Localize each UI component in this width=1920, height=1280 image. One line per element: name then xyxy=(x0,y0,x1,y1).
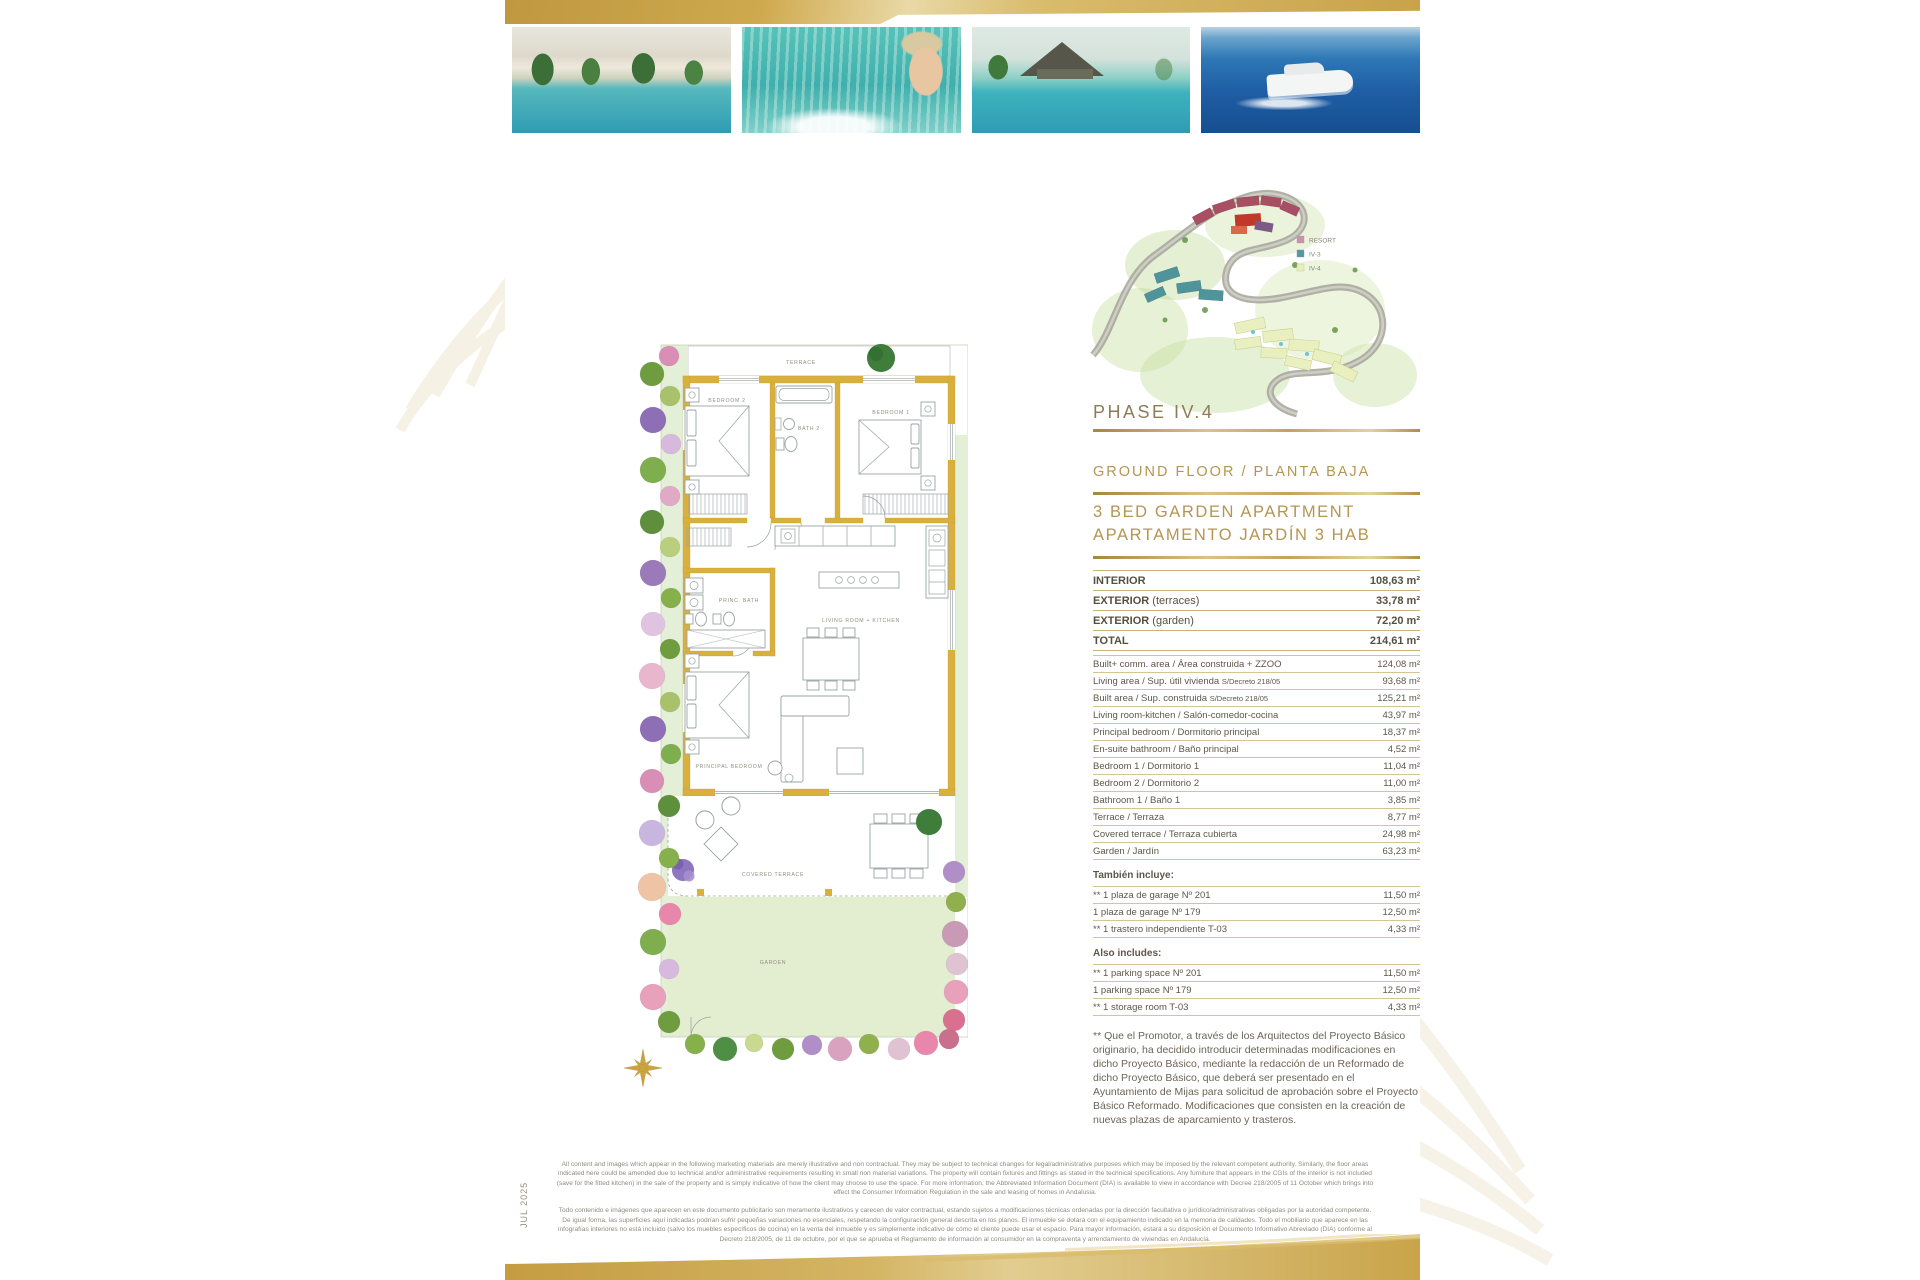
table-row: Living room-kitchen / Salón-comedor-coci… xyxy=(1093,707,1420,724)
table-row: TOTAL 214,61 m² xyxy=(1093,631,1420,651)
row-label: Built+ comm. area / Área construida + ZZ… xyxy=(1093,659,1282,670)
phase-title: PHASE IV.4 xyxy=(1093,402,1420,423)
table-row: ** 1 trastero independiente T-034,33 m² xyxy=(1093,921,1420,938)
floor-heading: GROUND FLOOR / PLANTA BAJA xyxy=(1093,464,1420,480)
masterplan-map: RESORT IV-3 IV-4 xyxy=(1085,170,1422,430)
row-value: 72,20 m² xyxy=(1376,615,1420,627)
row-value: 4,33 m² xyxy=(1388,1002,1420,1013)
top-gold-band xyxy=(505,0,1420,24)
bottom-gold-band xyxy=(505,1234,1420,1280)
table-row: 1 plaza de garage Nº 17912,50 m² xyxy=(1093,904,1420,921)
row-value: 108,63 m² xyxy=(1370,575,1420,587)
photo-yacht xyxy=(1201,27,1420,133)
row-label: 1 parking space Nº 179 xyxy=(1093,985,1192,996)
row-label: Principal bedroom / Dormitorio principal xyxy=(1093,727,1259,738)
photo-resort-pool xyxy=(512,27,731,133)
table-row: ** 1 storage room T-034,33 m² xyxy=(1093,999,1420,1016)
row-label: EXTERIOR xyxy=(1093,595,1149,607)
table-row: Garden / Jardín63,23 m² xyxy=(1093,843,1420,860)
table-row: Bedroom 1 / Dormitorio 111,04 m² xyxy=(1093,758,1420,775)
row-label: INTERIOR xyxy=(1093,575,1146,587)
table-row: ** 1 parking space Nº 20111,50 m² xyxy=(1093,965,1420,982)
garden-lawn xyxy=(668,897,955,1037)
legend-label-resort: RESORT xyxy=(1309,238,1336,245)
legend-swatch-iv4 xyxy=(1297,264,1304,271)
row-label: Bedroom 1 / Dormitorio 1 xyxy=(1093,761,1199,772)
row-value: 63,23 m² xyxy=(1383,846,1421,857)
promoter-footnote: ** Que el Promotor, a través de los Arqu… xyxy=(1093,1030,1420,1128)
row-value: 125,21 m² xyxy=(1377,693,1420,704)
table-row: Living area / Sup. útil vivienda S/Decre… xyxy=(1093,673,1420,690)
gold-rule xyxy=(1093,429,1420,432)
brochure-page: TERRACE xyxy=(505,0,1420,1280)
gold-rule xyxy=(1093,492,1420,495)
row-value: 11,00 m² xyxy=(1383,778,1420,789)
tambien-table: ** 1 plaza de garage Nº 20111,50 m² 1 pl… xyxy=(1093,886,1420,938)
row-value: 11,50 m² xyxy=(1383,968,1420,979)
table-row: Built+ comm. area / Área construida + ZZ… xyxy=(1093,656,1420,673)
bedroom2-label: BEDROOM 2 xyxy=(708,398,745,404)
row-value: 8,77 m² xyxy=(1388,812,1420,823)
row-note: (terraces) xyxy=(1152,595,1199,607)
row-value: 93,68 m² xyxy=(1383,676,1421,687)
gold-rule xyxy=(1093,556,1420,559)
yacht-shape xyxy=(1266,69,1353,97)
principal-bath-label: PRINC. BATH xyxy=(719,598,759,604)
garden-label: GARDEN xyxy=(760,960,786,966)
disclaimer-en: All content and images which appear in t… xyxy=(555,1160,1375,1197)
terrace-column xyxy=(697,889,704,896)
row-label: ** 1 parking space Nº 201 xyxy=(1093,968,1202,979)
legend-swatch-iv3 xyxy=(1297,250,1304,257)
table-row: EXTERIOR (garden)72,20 m² xyxy=(1093,611,1420,631)
row-value: 12,50 m² xyxy=(1383,985,1421,996)
row-label: En-suite bathroom / Baño principal xyxy=(1093,744,1239,755)
table-row: Bedroom 2 / Dormitorio 211,00 m² xyxy=(1093,775,1420,792)
covered-terrace-label: COVERED TERRACE xyxy=(742,872,804,878)
top-terrace xyxy=(688,346,950,376)
bath2-label: BATH 2 xyxy=(798,426,820,432)
row-label: ** 1 storage room T-03 xyxy=(1093,1002,1188,1013)
principal-bedroom-label: PRINCIPAL BEDROOM xyxy=(696,764,763,770)
brochure-canvas: TERRACE xyxy=(0,0,1920,1280)
compass-rose xyxy=(624,1049,662,1087)
area-summary-table: INTERIOR 108,63 m² EXTERIOR (terraces)33… xyxy=(1093,570,1420,651)
legend-label-iv4: IV-4 xyxy=(1309,266,1321,273)
row-small: S/Decreto 218/05 xyxy=(1222,677,1280,686)
row-label: Terrace / Terraza xyxy=(1093,812,1164,823)
row-label: TOTAL xyxy=(1093,635,1129,647)
table-row: En-suite bathroom / Baño principal4,52 m… xyxy=(1093,741,1420,758)
table-row: ** 1 plaza de garage Nº 20111,50 m² xyxy=(1093,887,1420,904)
table-row: Bathroom 1 / Baño 13,85 m² xyxy=(1093,792,1420,809)
row-value: 11,04 m² xyxy=(1383,761,1420,772)
photo-strip xyxy=(512,27,1420,133)
living-label: LIVING ROOM + KITCHEN xyxy=(822,618,900,624)
table-row: Terrace / Terraza8,77 m² xyxy=(1093,809,1420,826)
row-label: 1 plaza de garage Nº 179 xyxy=(1093,907,1201,918)
row-value: 33,78 m² xyxy=(1376,595,1420,607)
row-value: 18,37 m² xyxy=(1383,727,1421,738)
terrace-label: TERRACE xyxy=(786,360,816,366)
row-value: 12,50 m² xyxy=(1383,907,1421,918)
tambien-heading: También incluye: xyxy=(1093,870,1174,881)
dining-table xyxy=(803,628,859,690)
row-value: 4,33 m² xyxy=(1388,924,1420,935)
row-label: Bathroom 1 / Baño 1 xyxy=(1093,795,1180,806)
photo-lagoon-palapa xyxy=(972,27,1191,133)
row-value: 214,61 m² xyxy=(1370,635,1420,647)
tree xyxy=(869,347,883,361)
apartment-title-es: APARTAMENTO JARDÍN 3 HAB xyxy=(1093,526,1420,545)
row-value: 11,50 m² xyxy=(1383,890,1420,901)
terrace-column xyxy=(825,889,832,896)
row-label: ** 1 trastero independiente T-03 xyxy=(1093,924,1227,935)
legend-swatch-resort xyxy=(1297,236,1304,243)
date-code: JUL 2025 xyxy=(519,1148,529,1228)
area-detail-table: Built+ comm. area / Área construida + ZZ… xyxy=(1093,655,1420,860)
row-value: 124,08 m² xyxy=(1377,659,1420,670)
row-small: S/Decreto 218/05 xyxy=(1210,694,1268,703)
row-note: (garden) xyxy=(1152,615,1194,627)
also-table: ** 1 parking space Nº 20111,50 m² 1 park… xyxy=(1093,964,1420,1016)
palapa-base-shape xyxy=(1037,69,1093,79)
table-row: Principal bedroom / Dormitorio principal… xyxy=(1093,724,1420,741)
table-row: 1 parking space Nº 17912,50 m² xyxy=(1093,982,1420,999)
row-label: EXTERIOR xyxy=(1093,615,1149,627)
row-label: Built area / Sup. construida xyxy=(1093,693,1207,704)
row-label: Covered terrace / Terraza cubierta xyxy=(1093,829,1237,840)
row-label: ** 1 plaza de garage Nº 201 xyxy=(1093,890,1211,901)
apartment-title-en: 3 BED GARDEN APARTMENT xyxy=(1093,503,1420,522)
table-row: INTERIOR 108,63 m² xyxy=(1093,571,1420,591)
row-value: 3,85 m² xyxy=(1388,795,1420,806)
row-value: 24,98 m² xyxy=(1383,829,1421,840)
row-label: Garden / Jardín xyxy=(1093,846,1159,857)
row-label: Bedroom 2 / Dormitorio 2 xyxy=(1093,778,1199,789)
bedroom1-label: BEDROOM 1 xyxy=(872,410,909,416)
legend-label-iv3: IV-3 xyxy=(1309,252,1321,259)
row-label: Living room-kitchen / Salón-comedor-coci… xyxy=(1093,710,1278,721)
table-row: Covered terrace / Terraza cubierta24,98 … xyxy=(1093,826,1420,843)
table-row: Built area / Sup. construida S/Decreto 2… xyxy=(1093,690,1420,707)
table-row: EXTERIOR (terraces)33,78 m² xyxy=(1093,591,1420,611)
floorplan: TERRACE xyxy=(623,340,968,1100)
row-value: 4,52 m² xyxy=(1388,744,1420,755)
photo-spa-waterfall xyxy=(742,27,961,133)
row-value: 43,97 m² xyxy=(1383,710,1421,721)
also-heading: Also includes: xyxy=(1093,948,1161,959)
row-label: Living area / Sup. útil vivienda xyxy=(1093,676,1219,687)
